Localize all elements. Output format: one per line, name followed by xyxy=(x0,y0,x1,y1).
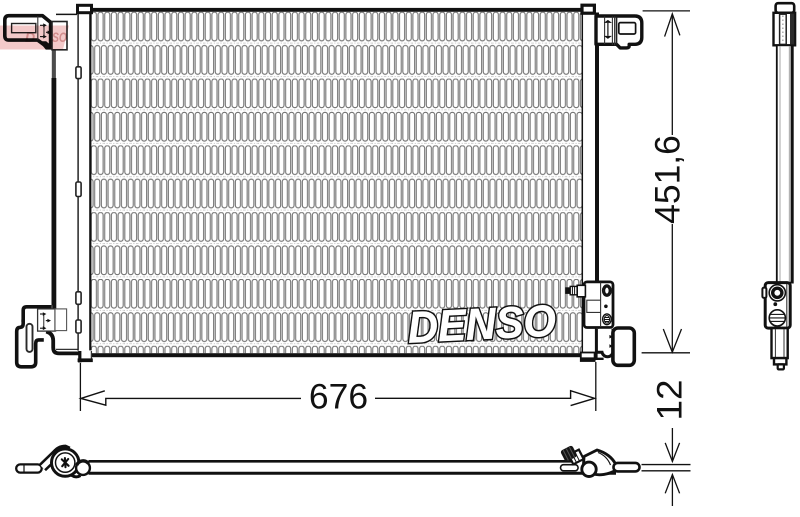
svg-text:SO: SO xyxy=(52,29,67,45)
svg-text:676: 676 xyxy=(309,376,368,416)
svg-text:451,6: 451,6 xyxy=(648,135,688,224)
svg-text:12: 12 xyxy=(650,380,690,421)
svg-text:DENSO: DENSO xyxy=(407,296,557,352)
svg-text:D: D xyxy=(25,29,35,45)
